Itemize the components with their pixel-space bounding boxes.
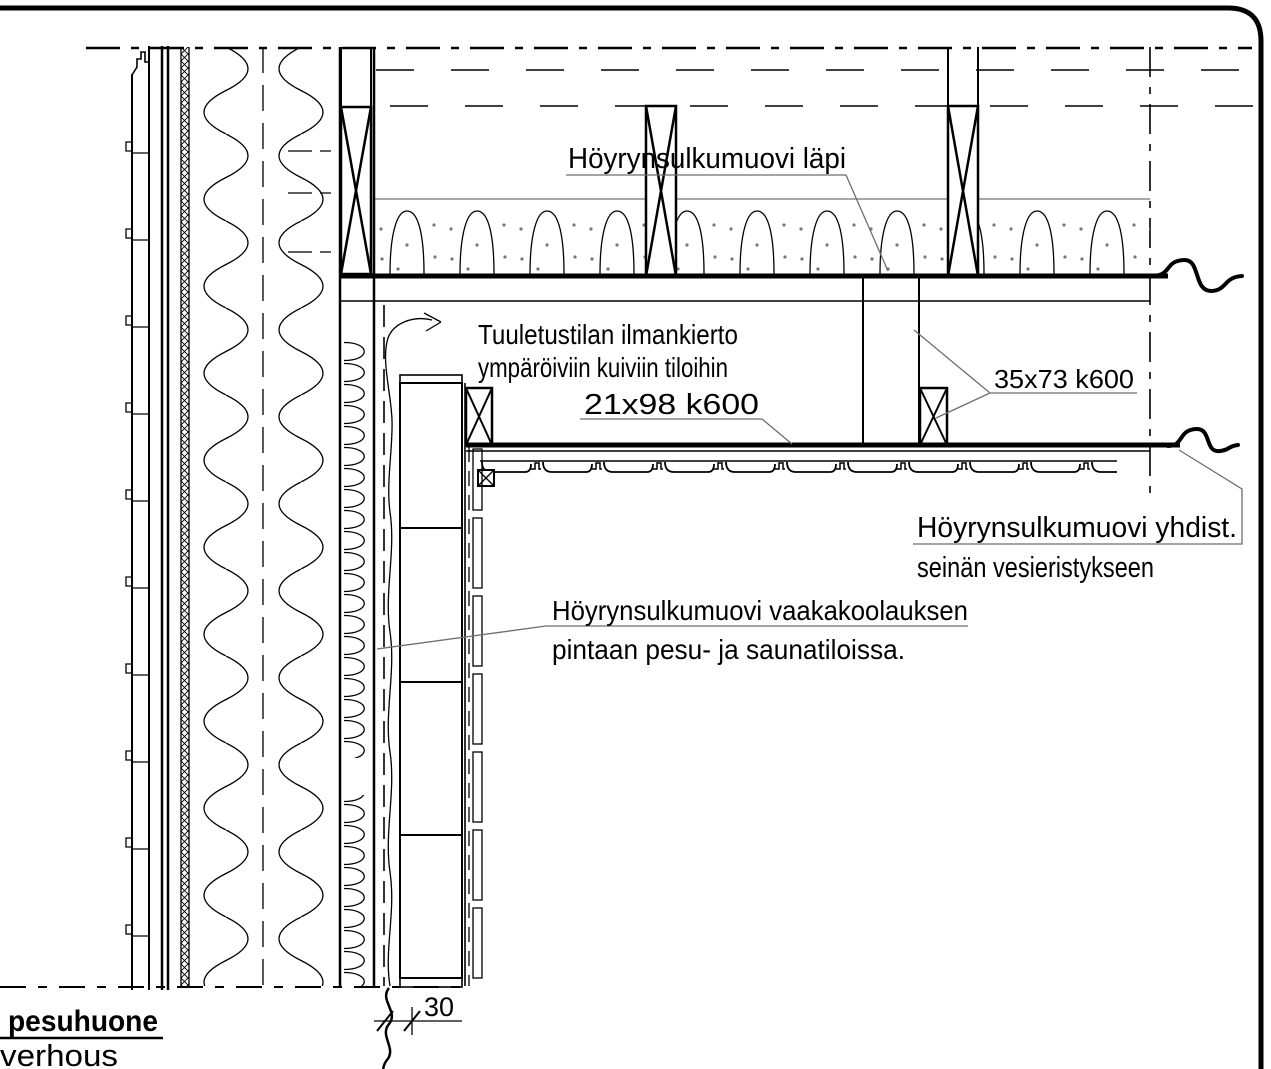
- label-vapor-wall-2: pintaan pesu- ja saunatiloissa.: [552, 634, 905, 665]
- label-room-name: pesuhuone: [8, 1005, 158, 1038]
- wall-top-stud: [341, 47, 371, 274]
- lower-ceiling-lines: [466, 429, 1238, 451]
- label-21x98: 21x98 k600: [584, 389, 759, 421]
- ceiling-joist-mid: [646, 106, 676, 276]
- ceiling-batten-35x73-mid: [920, 388, 947, 445]
- label-ventilation-2: ympäröiviin kuiviin tiloihin: [478, 352, 728, 383]
- label-35x73: 35x73 k600: [994, 364, 1134, 394]
- label-cladding: verhous: [0, 1038, 118, 1069]
- bottom-break-wiggle: [383, 988, 392, 1069]
- label-vapor-join-2: seinän vesieristykseen: [917, 552, 1154, 584]
- furring-batten-hatched: [400, 375, 462, 987]
- ceiling-panel-boards: [480, 461, 1117, 477]
- wall-insulation: [189, 47, 338, 986]
- break-mark-lower: [1168, 429, 1238, 451]
- attic-dashed-lines: [376, 70, 1258, 106]
- leader-21x98: [580, 419, 792, 444]
- label-vapor-join-1: Höyrynsulkumuovi yhdist.: [917, 512, 1237, 544]
- ceiling-joist-right: [948, 47, 978, 276]
- ceiling-insulation: [374, 199, 1150, 274]
- horizontal-furring-insulation: [343, 341, 373, 986]
- nailing-batten-small: [478, 470, 494, 486]
- detail-drawing-canvas: 30 Höyrynsulkumuovi läpi Tuuletustilan i…: [0, 0, 1271, 1069]
- ventilation-gap-battens: [162, 46, 168, 990]
- dimension-30-value: 30: [424, 992, 454, 1022]
- ceiling-batten-35x73-wall: [466, 388, 492, 445]
- exterior-cladding: [126, 46, 149, 990]
- label-vapor-through: Höyrynsulkumuovi läpi: [568, 143, 846, 175]
- construction-detail-drawing: 30 Höyrynsulkumuovi läpi Tuuletustilan i…: [0, 0, 1271, 1069]
- air-flow-arrow: [386, 313, 441, 986]
- cladding-joints: [126, 142, 149, 936]
- label-vapor-wall-1: Höyrynsulkumuovi vaakakoolauksen: [552, 595, 968, 626]
- wind-barrier-board: [181, 47, 189, 988]
- arrow-head: [424, 313, 441, 331]
- label-ventilation-1: Tuuletustilan ilmankierto: [478, 319, 738, 350]
